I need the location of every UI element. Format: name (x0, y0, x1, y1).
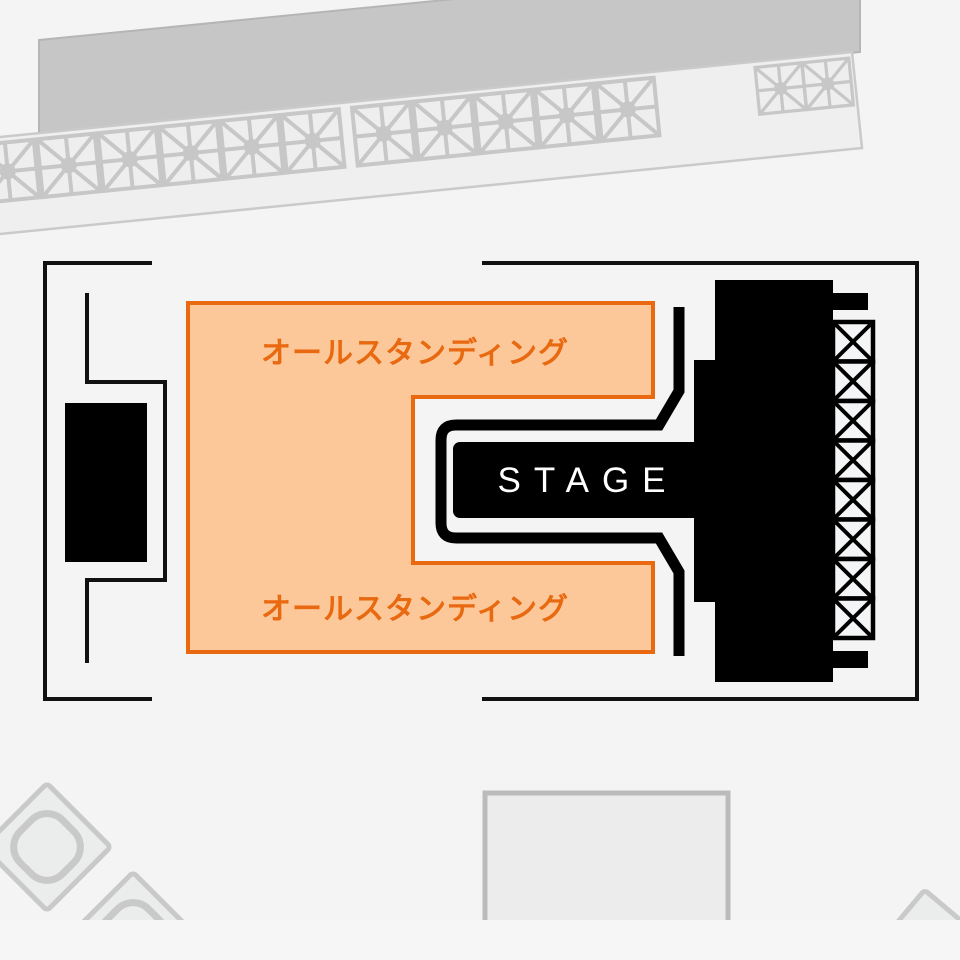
truss-box (833, 559, 873, 599)
venue-map-canvas: オールスタンディング オールスタンディング STAGE (0, 0, 960, 960)
venue-hall: オールスタンディング オールスタンディング STAGE (45, 263, 917, 699)
stage-truss-column (833, 322, 873, 638)
truss-box (755, 63, 806, 114)
stage-tab-top (833, 293, 868, 310)
truss-box (802, 58, 853, 109)
truss-box (833, 480, 873, 520)
truss-box (474, 90, 537, 153)
truss-box (159, 121, 222, 184)
bottom-overlay-band (0, 920, 960, 960)
stage-tab-bottom (833, 651, 868, 668)
truss-box (0, 140, 39, 203)
surroundings-bottom (0, 783, 960, 960)
building-bottom-left-1 (0, 783, 111, 910)
truss-box (281, 109, 344, 172)
truss-box (833, 441, 873, 481)
standing-area-bottom-label: オールスタンディング (261, 592, 569, 626)
truss-box (352, 102, 415, 165)
truss-box (833, 401, 873, 441)
truss-box (535, 84, 598, 147)
stage-main-block (715, 280, 833, 682)
surroundings-top (0, 0, 862, 235)
truss-box (833, 322, 873, 362)
truss-box (220, 115, 283, 178)
truss-box (833, 362, 873, 402)
stage-label: STAGE (497, 461, 678, 500)
standing-area-top-label: オールスタンディング (261, 336, 569, 370)
truss-box (98, 127, 161, 190)
truss-box (37, 134, 100, 197)
mixer-booth (65, 403, 147, 562)
truss-box (413, 96, 476, 159)
truss-box (833, 520, 873, 560)
venue-floor-map: オールスタンディング オールスタンディング STAGE (0, 0, 960, 960)
truss-box (833, 599, 873, 639)
truss-box (596, 78, 659, 141)
